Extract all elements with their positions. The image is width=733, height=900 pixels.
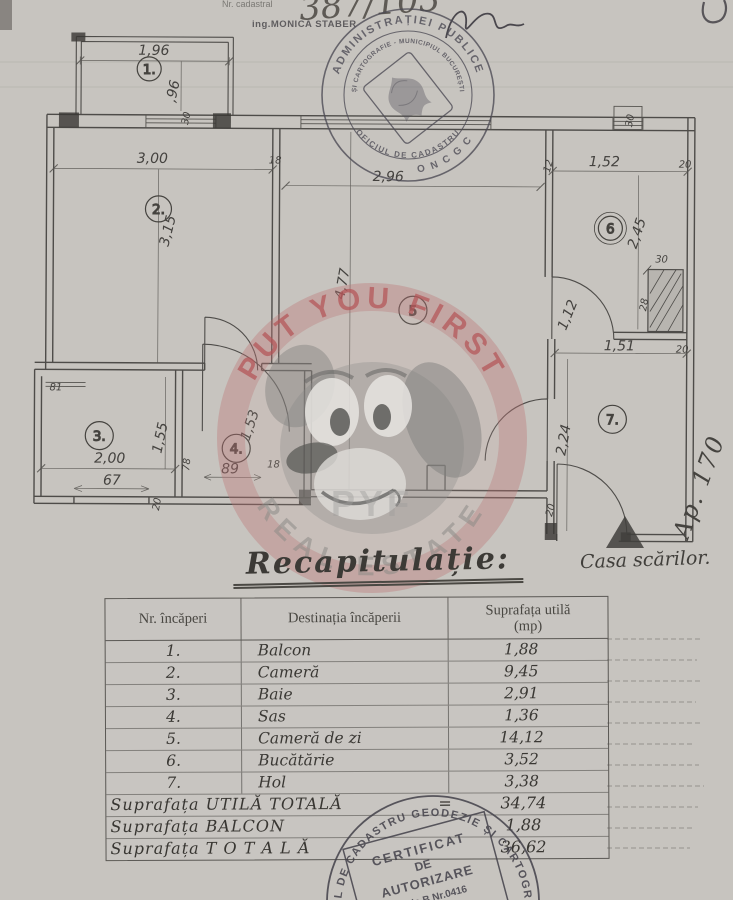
table-row: 6. Bucătărie 3,52 xyxy=(106,749,608,773)
dim-bath-window: 67 xyxy=(103,473,121,489)
table-row: 3. Baie 2,91 xyxy=(106,683,608,707)
table-row: 7. Hol 3,38 xyxy=(106,771,608,795)
stamp-top: ADMINISTRAȚIEI PUBLICE ȘI CARTOGRAFIE - … xyxy=(322,9,494,181)
svg-text:7.: 7. xyxy=(606,412,619,428)
stamp-coat-of-arms xyxy=(362,51,454,145)
dim-shaft-width: 30 xyxy=(655,255,668,266)
dim-kitchen-height: 2,45 xyxy=(625,216,650,251)
apartment-number: Ap. 170 xyxy=(667,431,731,544)
dim-bath-width: 2,00 xyxy=(94,451,125,467)
dim-balcony-height: ,96 xyxy=(163,79,183,104)
recap-table: Nr. încăperi Destinația încăperii Supraf… xyxy=(104,596,609,861)
table-row: 2. Cameră 9,45 xyxy=(106,661,608,685)
dim-bath-height: 1,55 xyxy=(149,421,171,455)
room-circle-7: 7. xyxy=(598,405,626,433)
recap-title: Recapitulație: xyxy=(233,541,524,589)
dim-wall-78: 78 xyxy=(181,458,193,472)
watermark-monogram: PYF xyxy=(331,483,413,524)
summary-row-useful-total: Suprafața UTILĂ TOTALĂ = 34,74 xyxy=(106,793,608,817)
header-area-line1: Suprafața utilă xyxy=(485,602,570,618)
summary-row-total: Suprafața T O T A L Ă 36,62 xyxy=(106,837,608,860)
pen-mark-top-right xyxy=(703,0,726,22)
dim-shaft-depth: 28 xyxy=(638,298,651,312)
dim-wall-20-top: 20 xyxy=(679,160,692,171)
dim-wall-20-bottom: 20 xyxy=(151,497,164,511)
dim-hall-height: 2,24 xyxy=(553,423,574,457)
svg-text:1.: 1. xyxy=(143,62,156,78)
dim-balcony-width: 1,96 xyxy=(138,43,169,59)
table-row: 4. Sas 1,36 xyxy=(106,705,608,729)
room-circle-3: 3. xyxy=(85,422,113,450)
recap-table-header: Nr. încăperi Destinația încăperii Supraf… xyxy=(105,597,607,641)
room-circle-1: 1. xyxy=(137,57,161,81)
dim-room2-width: 3,00 xyxy=(137,151,168,167)
dim-bath-window-top: 81 xyxy=(50,382,63,393)
cadastral-number-label: Nr. cadastral xyxy=(222,0,273,9)
dim-kitchen-window: 30 xyxy=(624,113,637,127)
dim-kitchen-width: 1,52 xyxy=(589,154,620,170)
dim-wall-12: 12 xyxy=(542,159,556,174)
ventilation-shaft-hatch xyxy=(643,265,683,331)
svg-text:Ap. 170: Ap. 170 xyxy=(667,431,731,544)
svg-text:6: 6 xyxy=(606,221,615,237)
dim-wall-20-exit: 20 xyxy=(544,503,558,518)
engineer-name: ing.MONICA STABER xyxy=(252,19,357,30)
header-area: Suprafața utilă (mp) xyxy=(447,597,607,639)
scanned-cadastral-document: Nr. cadastral 387/103 ing.MONICA STABER xyxy=(0,0,733,900)
room-circle-6: 6 xyxy=(594,212,626,244)
dim-room2-height: 3,15 xyxy=(157,214,180,248)
dim-hall-width: 1,51 xyxy=(604,338,635,354)
svg-text:3.: 3. xyxy=(93,429,106,445)
scan-corner-mark xyxy=(0,0,12,30)
staircase-label: Casa scărilor. xyxy=(580,547,711,574)
watermark: PUT YOU FIRST REAL ESTATE PYF xyxy=(231,281,513,581)
dim-room5-window: 2,96 xyxy=(373,169,404,185)
svg-text:2.: 2. xyxy=(152,202,165,218)
dim-wall-20-right: 20 xyxy=(676,345,689,356)
header-destination: Destinația încăperii xyxy=(240,598,447,640)
staircase-arrow xyxy=(606,516,644,548)
header-area-line2: (mp) xyxy=(514,618,542,634)
header-nr: Nr. încăperi xyxy=(105,599,240,641)
table-row: 5. Cameră de zi 14,12 xyxy=(106,727,608,751)
table-row: 1. Balcon 1,88 xyxy=(106,639,608,663)
dim-wall-18-top: 18 xyxy=(269,155,282,166)
dim-door-diagonal: 1,12 xyxy=(555,298,582,333)
summary-row-balcony: Suprafața BALCON 1,88 xyxy=(106,815,608,839)
